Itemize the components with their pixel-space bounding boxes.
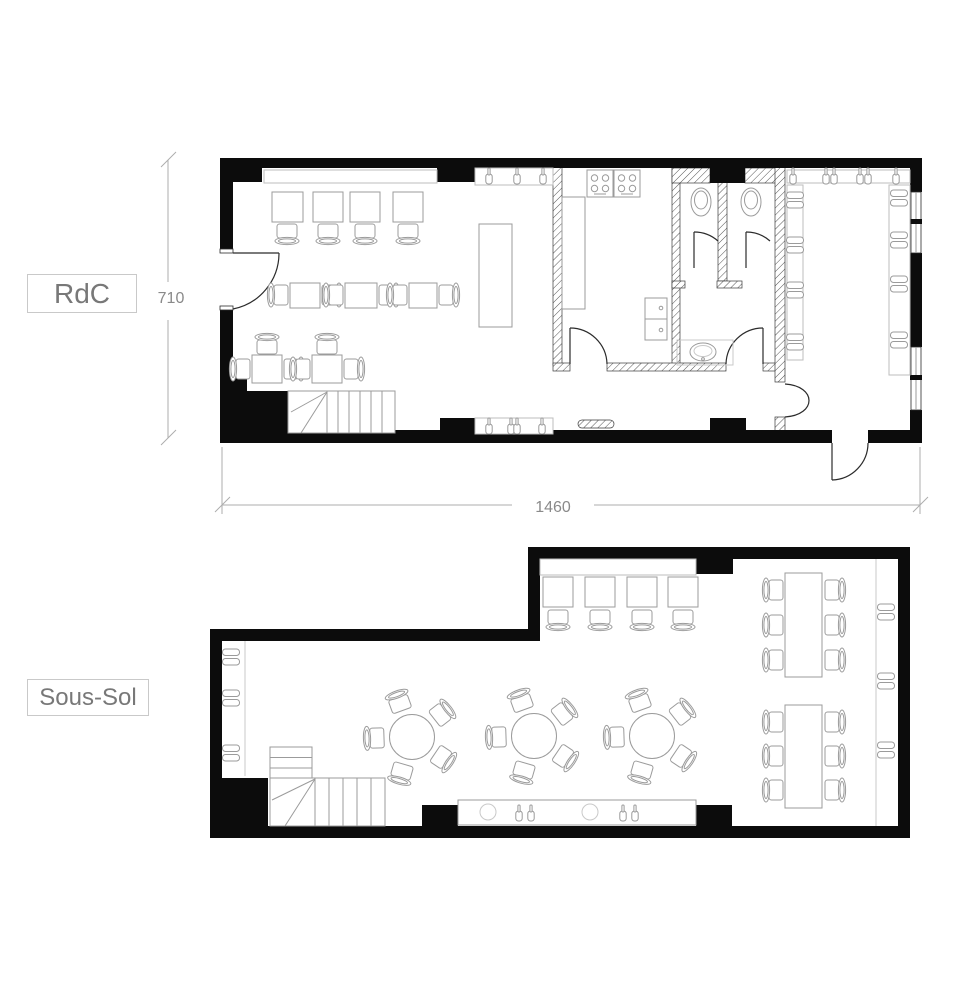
width-dimension: 1460 [535, 499, 571, 516]
radiator-icon [578, 420, 614, 428]
height-dimension: 710 [158, 290, 185, 307]
cabinet-icon [270, 747, 312, 778]
table-icon [252, 355, 282, 383]
sous-sol-bar [458, 800, 696, 825]
table-icon [393, 192, 423, 222]
round-table-icon [630, 714, 675, 759]
table-icon [543, 577, 573, 607]
table-icon [785, 705, 822, 808]
table-icon [345, 283, 377, 308]
sous-sol-stairs [270, 747, 385, 826]
kitchen-area [562, 170, 667, 340]
table-icon [350, 192, 380, 222]
bench-icon [540, 559, 696, 575]
table-icon [290, 283, 320, 308]
table-icon [409, 283, 437, 308]
rdc-plan [220, 158, 922, 480]
table-icon [785, 573, 822, 677]
stairs-icon [288, 391, 395, 433]
table-icon [668, 577, 698, 607]
rdc-dining-tables [229, 192, 512, 383]
stairs-icon [270, 778, 385, 826]
floor-plans-drawing: 710 1460 [0, 0, 970, 990]
table-icon [627, 577, 657, 607]
sous-sol-round-tables [363, 686, 699, 787]
table-icon [312, 355, 342, 383]
sink-cabinet-icon [645, 319, 667, 340]
table-icon [313, 192, 343, 222]
table-icon [585, 577, 615, 607]
sous-sol-plan [210, 547, 910, 838]
bar-counter-icon [479, 224, 512, 327]
bench-icon [264, 170, 437, 183]
kitchen-counter-icon [562, 197, 585, 309]
round-table-icon [512, 714, 557, 759]
floor-plan-page: RdC Sous-Sol [0, 0, 970, 990]
sous-sol-top-tables [540, 559, 698, 631]
round-table-icon [390, 715, 435, 760]
sink-cabinet-icon [645, 298, 667, 319]
bar-counter-icon [458, 800, 696, 825]
sous-sol-long-tables [762, 573, 845, 808]
table-icon [272, 192, 303, 222]
